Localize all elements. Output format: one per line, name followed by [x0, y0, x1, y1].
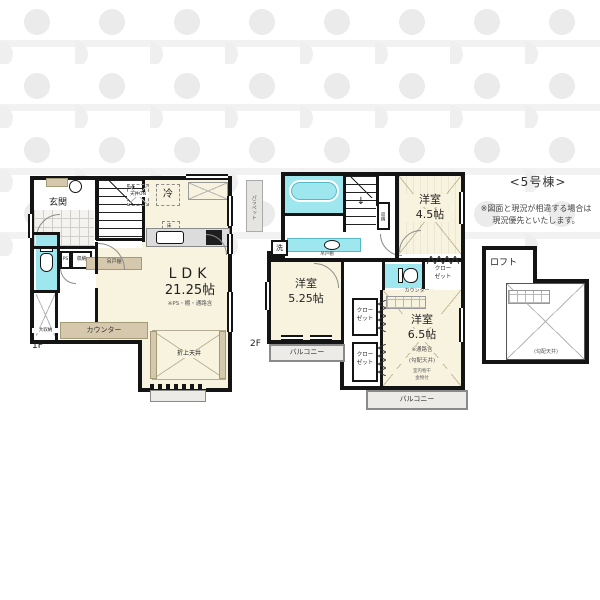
2f-floor-label: 2F	[250, 339, 274, 349]
2f-toilet-fixture	[403, 268, 418, 283]
loft-ladder-grid	[508, 290, 550, 304]
2f-stairs-arrow-icon: ↓	[352, 196, 370, 208]
closet-mid-upper-bifold-door	[378, 300, 386, 332]
disclaimer-line-2: 現況優先といたします。	[466, 216, 600, 225]
2f-stairs-break-line	[346, 176, 376, 198]
loft-ceiling-note: (勾配天井)	[520, 350, 572, 356]
room65-counter-label: カウンター	[400, 289, 434, 295]
building-title: <5号棟>	[478, 176, 598, 190]
genkan-label: 玄関	[38, 198, 78, 208]
room525-left-window	[265, 282, 271, 310]
kitchen-sink	[156, 231, 184, 244]
floorplan-page: 玄関 → 天井ON 冷 床下収納 PS 収納 吊戸棚 大収納 カウンター LDK…	[0, 0, 600, 600]
room65-counter-grid	[386, 296, 426, 309]
1f-porch-step	[150, 390, 206, 402]
room45-door-arc	[399, 230, 421, 252]
closet-right-bifold-door	[427, 256, 459, 264]
closet-right-label-1: クロー	[425, 266, 461, 272]
room525-size: 5.25帖	[274, 293, 338, 306]
parapet-label: パラペット	[250, 183, 256, 231]
room525-door-arc	[314, 263, 339, 288]
entrance-sink	[69, 180, 82, 193]
coffered-post-left	[150, 331, 157, 379]
room525-bottom-window-2	[310, 335, 332, 341]
1f-right-window-lower	[227, 292, 233, 332]
disclaimer-line-1: ※図面と現況が相違する場合は	[466, 204, 600, 213]
room65-right-window	[459, 308, 465, 342]
closet-mid-lower-bifold-door	[378, 344, 386, 376]
room65-note: ※通路含	[392, 347, 452, 353]
balcony-right-label: バルコニー	[366, 395, 468, 403]
1f-hatched-box	[188, 182, 228, 200]
closet-right-label-2: ゼット	[425, 274, 461, 280]
closet-mid-upper-label-2: ゼット	[352, 316, 378, 322]
1f-top-window	[186, 174, 228, 180]
hall-ldk-door-arc	[98, 243, 125, 270]
room45-size: 4.5帖	[405, 209, 455, 222]
kitchen-side-door-opening	[227, 234, 233, 254]
room65-ceiling-note: (勾配天井)	[392, 358, 452, 364]
1f-toilet-fixture	[40, 253, 53, 272]
room65-laundry-note-2: 金物付	[392, 376, 452, 381]
coffered-ceiling-label: 折上天井	[167, 351, 211, 358]
room45-name: 洋室	[405, 194, 455, 207]
room45-right-window	[459, 192, 465, 224]
kitchen-side-door-arc	[206, 234, 227, 255]
ps-label: PS	[60, 257, 71, 262]
room525-bottom-window-1	[281, 335, 303, 341]
coffered-post-right	[219, 331, 226, 379]
ldk-note: ※PS・棚・通路含	[150, 301, 230, 307]
room65-name: 洋室	[397, 314, 447, 327]
closet-mid-upper-label-1: クロー	[352, 308, 378, 314]
toilet-door-arc	[60, 268, 76, 284]
ldk-size: 21.25帖	[150, 284, 230, 299]
balcony-left-label: バルコニー	[269, 348, 345, 356]
1f-wall-genkan-bottom	[34, 246, 96, 249]
1f-wall-stairs-bottom	[96, 238, 145, 241]
2f-stair-storage-label: 収納	[380, 206, 385, 226]
1f-bottom-sliding-window	[150, 384, 206, 389]
2f-wall-toilet-left	[382, 262, 385, 290]
large-storage-label: 大収納	[32, 328, 59, 333]
1f-right-window-upper	[227, 196, 233, 226]
washer-label: 洗	[271, 244, 288, 252]
room65-size: 6.5帖	[397, 329, 447, 342]
bathtub	[289, 180, 339, 202]
closet-mid-lower-label-2: ゼット	[352, 360, 378, 366]
1f-floor-label: 1F	[32, 341, 56, 351]
2f-wall-bath-bottom	[285, 213, 343, 216]
ldk-name: LDK	[150, 266, 230, 282]
closet-mid-lower-label-1: クロー	[352, 352, 378, 358]
1f-wall-hall-lower	[95, 288, 98, 322]
1f-counter-label: カウンター	[60, 326, 148, 334]
loft-label: ロフト	[490, 258, 532, 268]
fridge-label: 冷	[156, 189, 180, 201]
2f-toilet-tank	[398, 268, 403, 283]
room65-laundry-note-1: 室内物干	[392, 369, 452, 374]
ceiling-unit-label: 天井ON	[127, 192, 149, 197]
vanity-sink	[324, 240, 340, 250]
shoe-cabinet	[46, 178, 68, 187]
2f-hanging-cupboard-label: 吊戸棚	[312, 252, 342, 257]
